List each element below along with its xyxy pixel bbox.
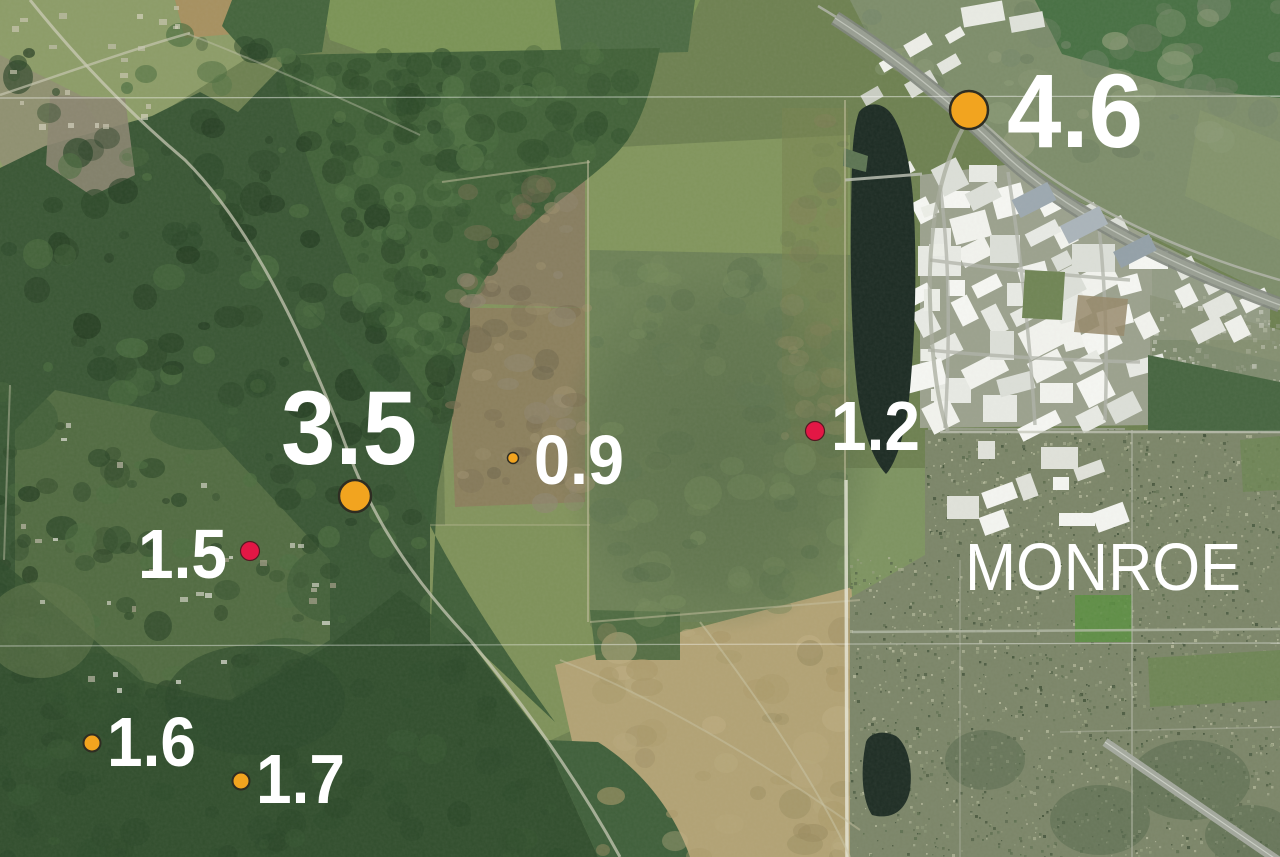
svg-text:1.2: 1.2	[831, 387, 920, 465]
svg-text:MONROE: MONROE	[965, 530, 1241, 605]
svg-text:4.6: 4.6	[1007, 53, 1143, 170]
svg-text:1.5: 1.5	[138, 515, 227, 593]
svg-text:0.9: 0.9	[534, 421, 624, 499]
svg-text:1.6: 1.6	[107, 703, 196, 781]
svg-text:3.5: 3.5	[281, 370, 417, 487]
svg-text:1.7: 1.7	[256, 740, 345, 818]
